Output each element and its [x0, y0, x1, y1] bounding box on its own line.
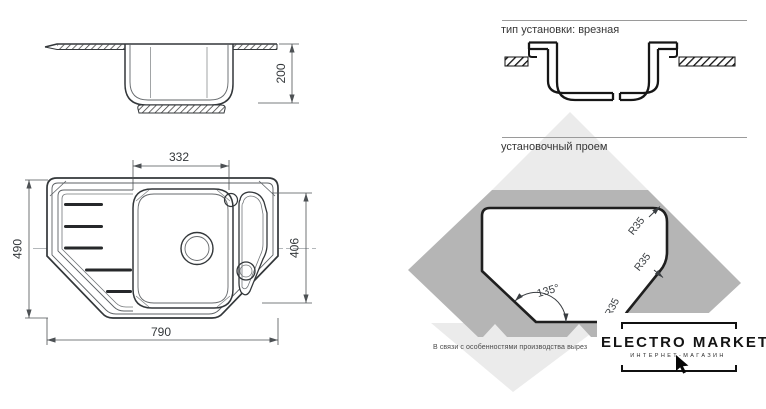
install-section-drawing [495, 38, 761, 138]
logo-title: ELECTRO MARKET [601, 334, 757, 351]
dim-200: 200 [258, 44, 299, 103]
production-note: В связи с особенностями производства выр… [433, 344, 587, 351]
dim-790-label: 790 [151, 325, 171, 339]
install-type-header: тип установки: врезная [501, 24, 619, 36]
product-drawing-page: 200 [0, 0, 766, 409]
dim-406-label: 406 [288, 238, 302, 258]
sink-side-view [45, 44, 277, 113]
sink-top-view [33, 178, 316, 318]
dim-200-label: 200 [274, 63, 288, 83]
countertop-section [505, 57, 735, 66]
dim-490: 490 [11, 180, 49, 318]
dim-790: 790 [47, 318, 278, 345]
sink-section-profile [529, 43, 677, 101]
divider-middle [502, 137, 747, 138]
sink-technical-drawing: 200 [0, 0, 400, 409]
divider-top [502, 20, 747, 21]
opening-header: установочный проем [501, 141, 607, 153]
dim-490-label: 490 [11, 239, 25, 259]
dim-332-label: 332 [169, 150, 189, 164]
cursor-icon [671, 352, 693, 376]
